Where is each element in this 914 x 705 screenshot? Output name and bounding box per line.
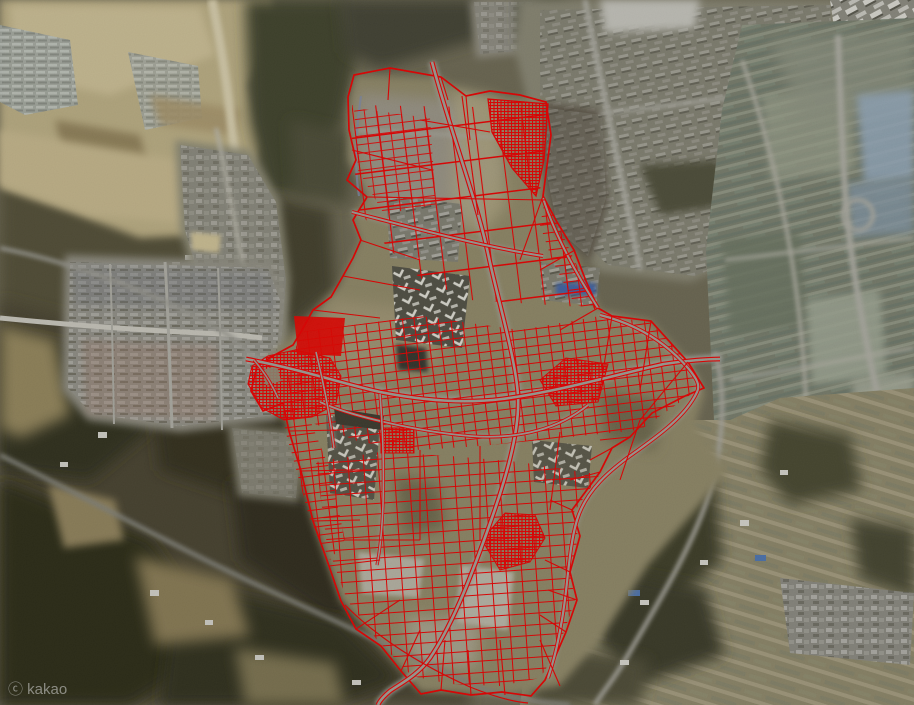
svg-text:ⓒ kakao: ⓒ kakao xyxy=(8,681,67,698)
